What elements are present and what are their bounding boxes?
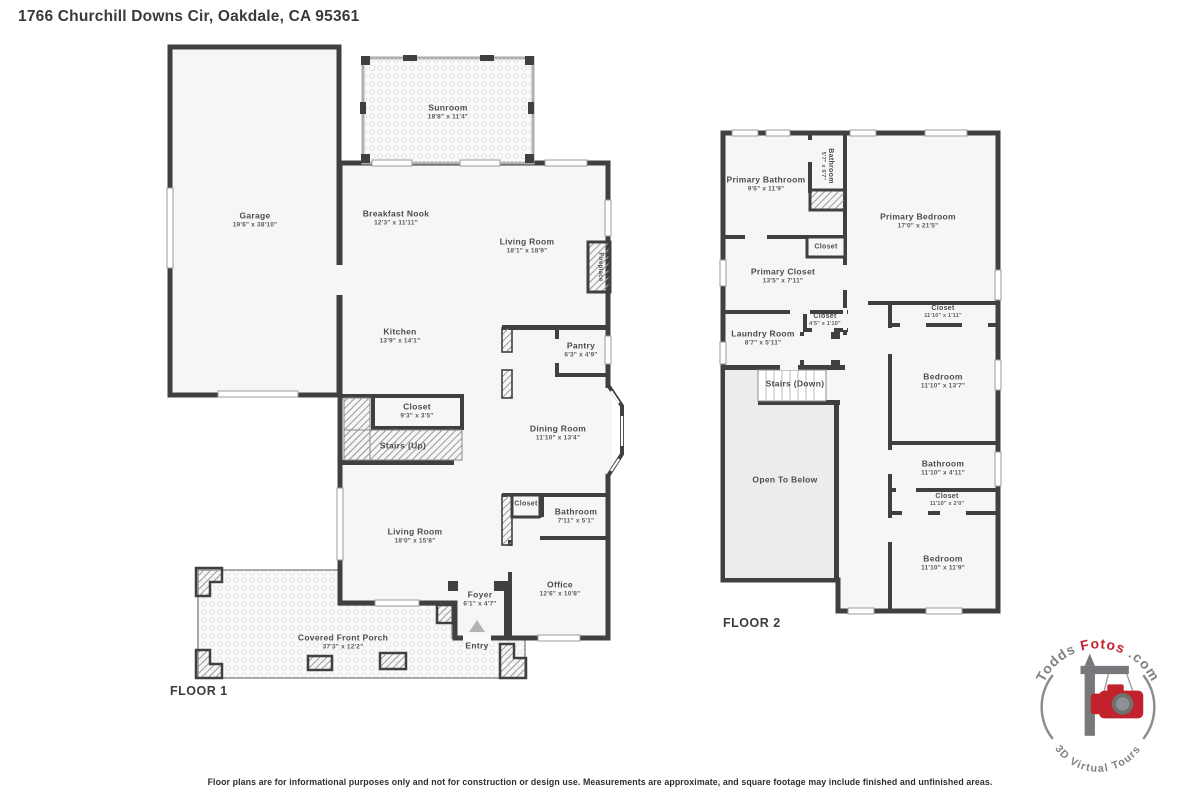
logo-tagline: 3D Virtual Tours [1052,743,1143,775]
svg-text:3D Virtual Tours: 3D Virtual Tours [1052,743,1143,775]
page-title: 1766 Churchill Downs Cir, Oakdale, CA 95… [18,8,359,26]
logo-text-fotos: Fotos [1079,635,1128,656]
floor2-walls [700,120,1020,640]
toddsfotos-logo: Todds Fotos .com 3D Virtual Tours [1026,634,1170,778]
floor1-plan: Garage 19'6" x 38'10" Sunroom 18'8" x 11… [160,40,630,700]
logo-text-todds: Todds [1032,640,1078,684]
floor1-tag: FLOOR 1 [170,684,228,698]
camera-sign-icon: Todds Fotos .com 3D Virtual Tours [1026,634,1170,778]
floor1-walls [160,40,630,700]
floor2-tag: FLOOR 2 [723,616,781,630]
disclaimer-text: Floor plans are for informational purpos… [0,777,1200,787]
floor2-plan: Primary Bathroom 9'6" x 11'9" Bathroom 5… [700,120,1020,640]
